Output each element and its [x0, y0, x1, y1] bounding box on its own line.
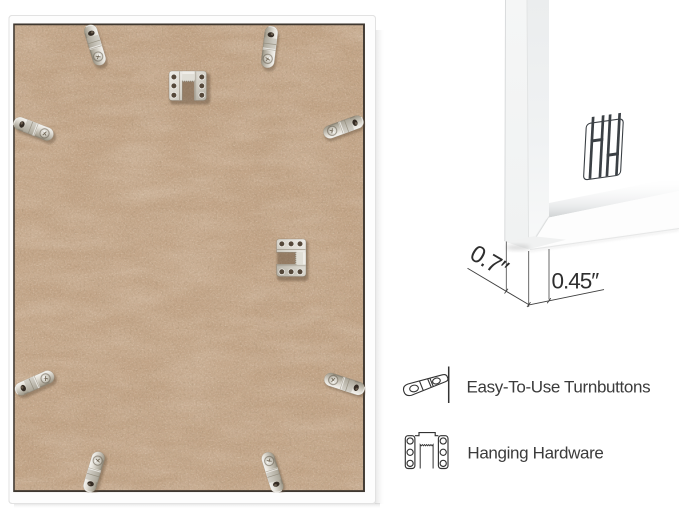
svg-text:Easy-To-Use Turnbuttons: Easy-To-Use Turnbuttons: [467, 378, 651, 397]
svg-text:0.45″: 0.45″: [552, 269, 600, 294]
svg-text:Hanging Hardware: Hanging Hardware: [467, 444, 603, 463]
